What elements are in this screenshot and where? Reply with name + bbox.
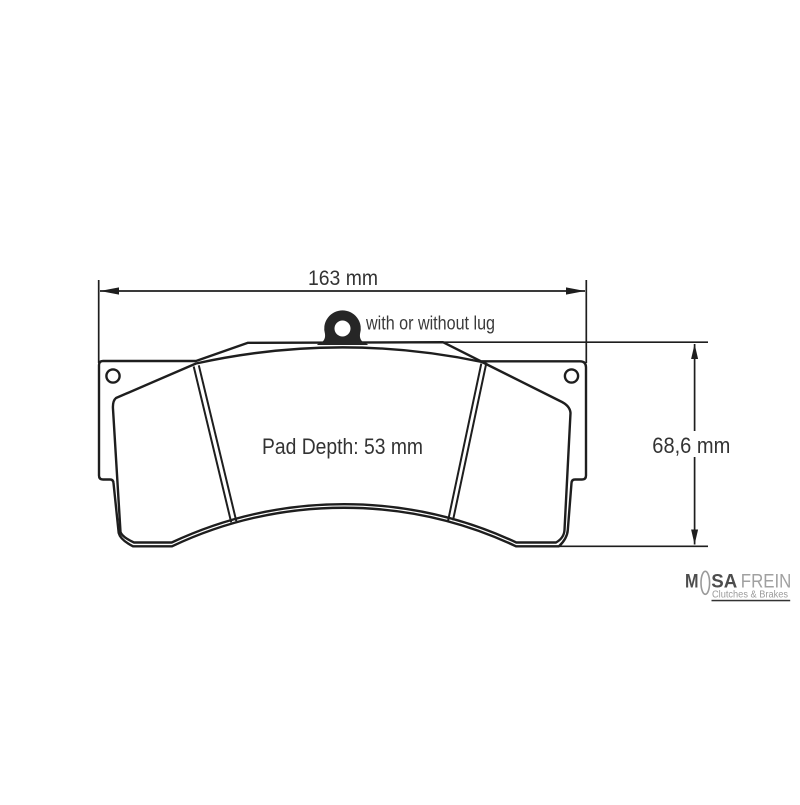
svg-text:Clutches & Brakes: Clutches & Brakes [712, 590, 788, 601]
svg-text:M: M [685, 571, 699, 593]
svg-text:Pad Depth: 53 mm: Pad Depth: 53 mm [262, 434, 423, 459]
svg-text:68,6 mm: 68,6 mm [652, 433, 730, 458]
svg-text:with or without lug: with or without lug [365, 313, 495, 335]
svg-text:163 mm: 163 mm [308, 267, 378, 290]
